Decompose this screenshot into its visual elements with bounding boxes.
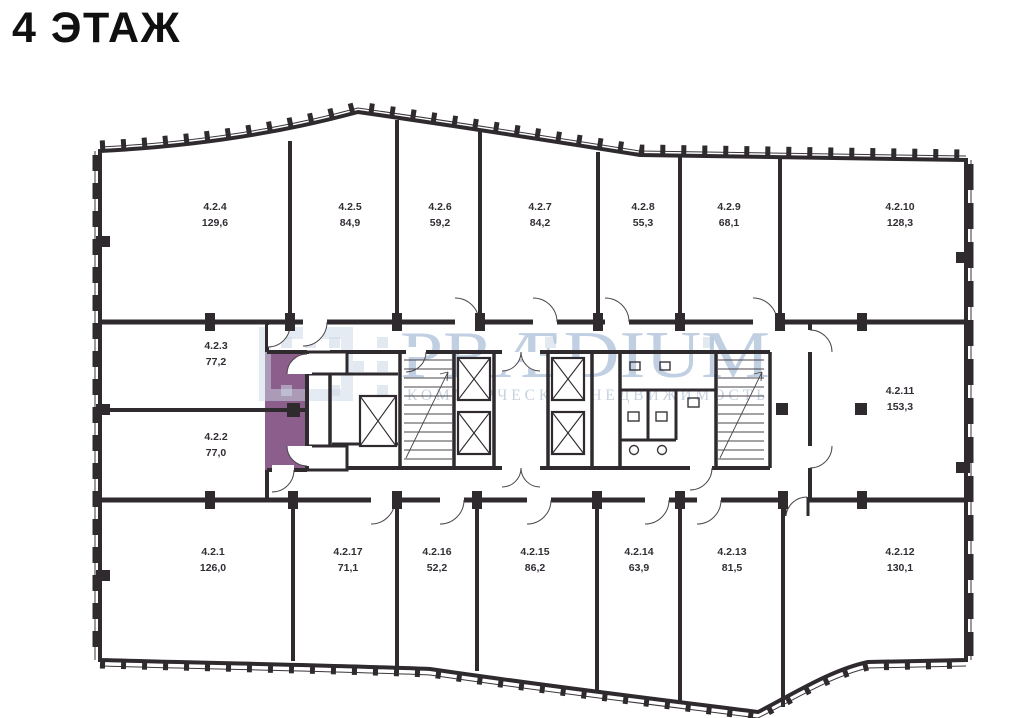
floor-plan-svg: PRÆDIUM КОММЕРЧЕСКАЯ НЕДВИЖИМОСТЬ — [0, 0, 1024, 718]
room-4.2.9-area: 68,1 — [719, 217, 740, 229]
room-4.2.14-area: 63,9 — [629, 562, 650, 574]
room-4.2.12-label: 4.2.12 — [885, 546, 914, 558]
alcove — [307, 446, 347, 470]
room-4.2.16-label: 4.2.16 — [422, 546, 451, 558]
room-4.2.7-label: 4.2.7 — [528, 201, 552, 213]
room-4.2.13-area: 81,5 — [722, 562, 743, 574]
floor-plan: PRÆDIUM КОММЕРЧЕСКАЯ НЕДВИЖИМОСТЬ — [0, 0, 1024, 718]
room-4.2.8-area: 55,3 — [633, 217, 654, 229]
room-4.2.3-area: 77,2 — [206, 356, 227, 368]
room-4.2.9-label: 4.2.9 — [717, 201, 741, 213]
room-4.2.5-label: 4.2.5 — [338, 201, 362, 213]
room-4.2.6-label: 4.2.6 — [428, 201, 452, 213]
room-4.2.2-label: 4.2.2 — [204, 431, 228, 443]
room-4.2.8-label: 4.2.8 — [631, 201, 655, 213]
room-4.2.10-label: 4.2.10 — [885, 201, 914, 213]
room-4.2.6-area: 59,2 — [430, 217, 451, 229]
room-4.2.17-label: 4.2.17 — [333, 546, 362, 558]
room-4.2.7-area: 84,2 — [530, 217, 551, 229]
room-4.2.5-area: 84,9 — [340, 217, 361, 229]
room-4.2.12-area: 130,1 — [887, 562, 913, 574]
room-4.2.3-label: 4.2.3 — [204, 340, 228, 352]
room-4.2.14-label: 4.2.14 — [624, 546, 653, 558]
room-4.2.15-label: 4.2.15 — [520, 546, 549, 558]
room-4.2.11-area: 153,3 — [887, 401, 913, 413]
room-4.2.15-area: 86,2 — [525, 562, 546, 574]
room-4.2.1-label: 4.2.1 — [201, 546, 225, 558]
alcove — [307, 352, 347, 374]
room-4.2.4-area: 129,6 — [202, 217, 228, 229]
room-4.2.16-area: 52,2 — [427, 562, 448, 574]
room-4.2.10-area: 128,3 — [887, 217, 913, 229]
room-4.2.17-area: 71,1 — [338, 562, 359, 574]
room-4.2.2-area: 77,0 — [206, 447, 227, 459]
room-4.2.11-label: 4.2.11 — [886, 385, 915, 397]
room-4.2.13-label: 4.2.13 — [717, 546, 746, 558]
room-4.2.4-label: 4.2.4 — [203, 201, 227, 213]
room-4.2.1-area: 126,0 — [200, 562, 226, 574]
